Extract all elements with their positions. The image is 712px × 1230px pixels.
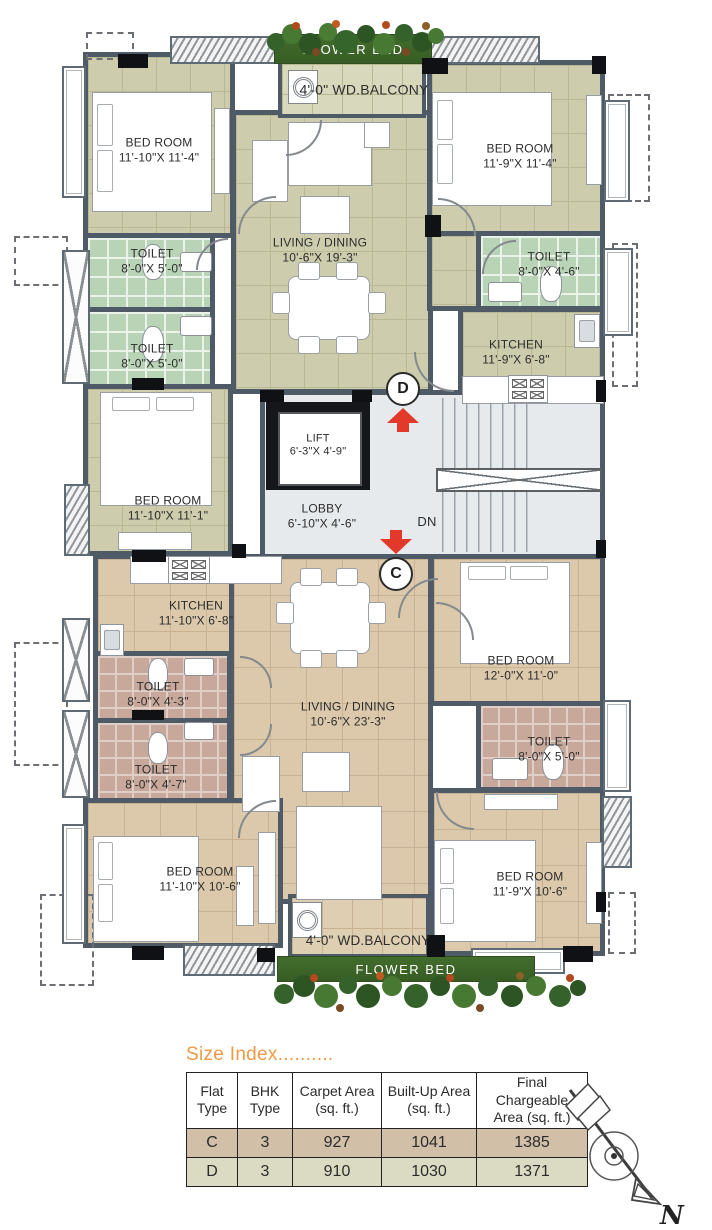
dining-chair [298,336,320,354]
label-c-toilet1: TOILET8'-0"X 4'-3" [127,679,189,708]
floor-plan-canvas: FLOWER BED FLOWER BED [0,0,712,1230]
column [132,710,164,720]
dining-chair [336,336,358,354]
dining-chair [336,650,358,668]
window [604,100,630,202]
projection-dashed [14,236,68,286]
column [257,948,275,962]
dining-chair [300,568,322,586]
label-d-toilet1: TOILET8'-0"X 5'-0" [121,246,183,275]
dining-chair [298,262,320,280]
coffee-table [300,196,350,234]
dining-chair [336,568,358,586]
railing [170,36,280,64]
plants-top [266,12,446,58]
cell: 927 [293,1128,382,1157]
toilet-basin [488,282,522,302]
kitchen-sink [574,314,600,348]
pillow [98,884,113,922]
dresser [484,794,558,810]
pillow [156,397,194,411]
column [596,380,606,402]
dresser [118,532,192,550]
pillow [440,888,454,924]
dining-table [290,582,370,654]
label-c-bed1: BED ROOM12'-0"X 11'-0" [484,653,558,682]
header-flat-type: FlatType [187,1073,238,1129]
column [425,215,441,237]
toilet-wc [148,732,168,764]
column [596,892,606,912]
side-table [364,122,390,148]
duct-shaft [62,618,90,702]
toilet-basin [180,316,212,336]
header-builtup-area: Built-Up Area(sq. ft.) [382,1073,477,1129]
stove-burners [508,375,548,403]
column [563,946,593,962]
label-d-bed3: BED ROOM11'-10"X 11'-1" [128,493,208,522]
label-d-toilet2: TOILET8'-0"X 5'-0" [121,341,183,370]
size-index-table: FlatType BHKType Carpet Area(sq. ft.) Bu… [186,1072,588,1187]
label-c-toilet3: TOILET8'-0"X 5'-0" [518,734,580,763]
window [603,700,631,792]
dining-chair [368,292,386,314]
wardrobe [586,95,602,185]
label-c-living: LIVING / DINING10'-6"X 23'-3" [301,699,395,728]
coffee-table [302,752,350,792]
wardrobe [258,832,276,924]
pillow [437,100,453,140]
column [132,550,166,562]
window [603,248,633,336]
north-arrow-icon: N [548,1072,708,1230]
pillow [98,842,113,880]
kitchen-sink [100,624,124,656]
stove-burners [168,556,210,584]
column [118,54,148,68]
flat-d-marker: D [386,372,420,406]
column [422,58,448,74]
column [260,390,284,402]
projection-dashed [14,642,68,766]
table-row-flat-c: C 3 927 1041 1385 [187,1128,588,1157]
dining-chair [276,602,294,624]
cell: 3 [238,1157,293,1186]
column [232,544,246,558]
dining-table [288,276,370,340]
label-d-bed1: BED ROOM11'-10"X 11'-4" [119,135,199,164]
label-d-toilet3: TOILET8'-0"X 4'-6" [518,249,580,278]
sofa [296,806,382,900]
column [352,390,372,402]
pillow [510,566,548,580]
toilet-basin [184,722,214,740]
label-lobby: LOBBY6'-10"X 4'-6" [288,501,356,530]
pillow [97,150,113,192]
plants-bottom [270,966,590,1014]
north-label: N [659,1201,685,1230]
label-lift: LIFT6'-3"X 4'-9" [290,433,347,460]
column [592,56,606,74]
table-row-flat-d: D 3 910 1030 1371 [187,1157,588,1186]
cell: 3 [238,1128,293,1157]
header-bhk-type: BHKType [238,1073,293,1129]
pillow [97,104,113,146]
label-balcony-top: 4'-0" WD.BALCONY [299,81,428,98]
column [596,540,606,558]
label-c-bed2: BED ROOM11'-10"X 10'-6" [159,864,240,893]
pillow [468,566,506,580]
label-d-bed2: BED ROOM11'-9"X 11'-4" [483,141,557,170]
wardrobe [214,108,230,194]
dining-chair [336,262,358,280]
dining-chair [368,602,386,624]
label-d-living: LIVING / DINING10'-6"X 19'-3" [273,235,367,264]
stair-rail [436,468,602,492]
header-carpet-area: Carpet Area(sq. ft.) [293,1073,382,1129]
down-arrow [380,530,412,554]
up-arrow [387,408,419,432]
duct-shaft [62,250,90,384]
cell: 910 [293,1157,382,1186]
label-d-kitchen: KITCHEN11'-9"X 6'-8" [482,337,550,366]
label-c-kitchen: KITCHEN11'-10"X 6'-8" [159,598,233,627]
cell: 1030 [382,1157,477,1186]
duct-shaft [62,710,90,798]
column [132,946,164,960]
label-dn: DN [417,514,436,530]
pillow [112,397,150,411]
window [62,66,86,198]
dining-chair [300,650,322,668]
cell: D [187,1157,238,1186]
railing [64,484,90,556]
label-c-toilet2: TOILET8'-0"X 4'-7" [125,762,187,791]
label-c-bed3: BED ROOM11'-9"X 10'-6" [493,869,567,898]
cell: C [187,1128,238,1157]
dining-chair [272,292,290,314]
label-balcony-bottom: 4'-0" WD.BALCONY [306,933,431,949]
cell: 1041 [382,1128,477,1157]
room-d-corridor [427,231,481,311]
flat-c-marker: C [379,557,413,591]
column [132,378,164,390]
projection-dashed [608,892,636,954]
pillow [437,144,453,184]
pillow [440,848,454,884]
size-index-title: Size Index.......... [186,1044,334,1066]
toilet-basin [184,658,214,676]
railing [602,796,632,868]
window [62,824,86,944]
armchair [252,140,288,202]
table-header-row: FlatType BHKType Carpet Area(sq. ft.) Bu… [187,1073,588,1129]
